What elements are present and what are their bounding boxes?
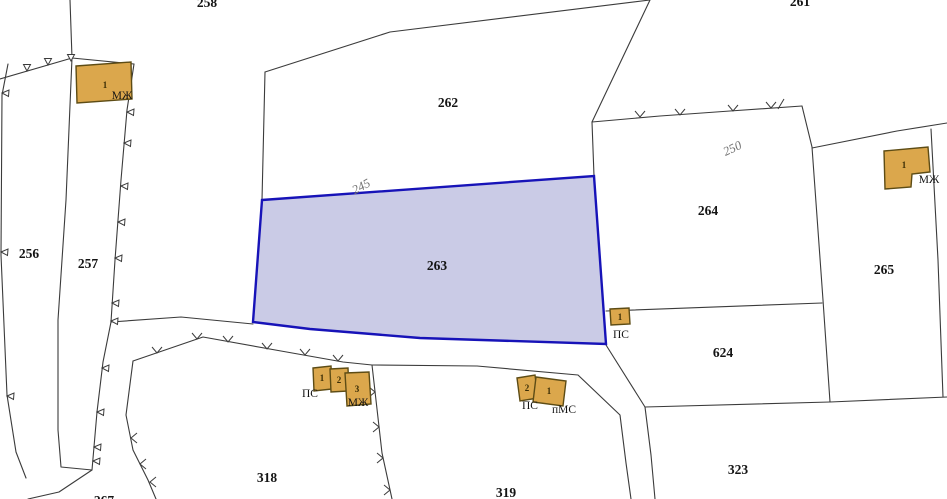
building-number: 1 xyxy=(547,386,552,396)
boundary-line xyxy=(812,147,830,402)
boundary-line xyxy=(111,317,253,324)
boundary-line xyxy=(265,0,650,72)
boundary-line xyxy=(812,123,947,148)
parcel-label-265: 265 xyxy=(874,262,895,277)
fence-triangle-marker xyxy=(115,255,122,262)
boundary-line xyxy=(126,361,156,499)
boundary-line xyxy=(592,106,802,122)
building-number: 1 xyxy=(618,312,623,322)
fence-triangle-marker xyxy=(111,318,118,325)
parcel-label-323: 323 xyxy=(728,462,749,477)
parcel-label-624: 624 xyxy=(713,345,734,360)
building-number: 2 xyxy=(337,375,342,385)
birdfoot-marker xyxy=(635,111,645,117)
parcel-label-partial-top-right: 261 xyxy=(790,0,811,9)
contour-label-250: 250 xyxy=(721,138,745,159)
fence-triangle-marker xyxy=(93,458,100,465)
building-number: 2 xyxy=(525,383,530,393)
fence-triangle-marker xyxy=(124,140,131,147)
boundary-line xyxy=(1,64,26,478)
boundary-line xyxy=(92,64,134,470)
parcel-label-256: 256 xyxy=(19,246,40,261)
building-number: 1 xyxy=(103,80,108,90)
boundary-line xyxy=(606,303,822,311)
boundary-line xyxy=(592,0,650,122)
map-canvas[interactable]: 1 1 1 1 2 3 2 1 МЖ МЖ ПС ПС МЖ ПС пМС 24… xyxy=(0,0,947,499)
boundary-line xyxy=(70,0,72,58)
boundary-line xyxy=(262,72,265,200)
parcel-label-partial-top-center: 258 xyxy=(197,0,218,10)
boundary-line xyxy=(931,129,943,397)
parcel-label-263: 263 xyxy=(427,258,448,273)
parcel-label-318: 318 xyxy=(257,470,278,485)
boundary-line xyxy=(372,365,392,499)
boundary-line xyxy=(592,122,594,176)
birdfoot-marker xyxy=(140,459,146,469)
boundary-line xyxy=(645,407,655,499)
building-type-label: ПС xyxy=(522,400,538,412)
building-type-label: МЖ xyxy=(919,174,940,186)
boundary-line xyxy=(645,397,947,407)
boundary-line xyxy=(133,337,631,499)
parcel-label-partial-bottom-left: 267 xyxy=(94,493,115,499)
fence-triangle-marker xyxy=(121,183,128,190)
building-number: 1 xyxy=(320,373,325,383)
building-number: 1 xyxy=(902,160,907,170)
birdfoot-marker xyxy=(131,433,137,443)
building-type-label: МЖ xyxy=(348,397,369,409)
parcel-label-257: 257 xyxy=(78,256,99,271)
birdfoot-marker xyxy=(766,102,776,108)
boundary-line xyxy=(606,345,645,407)
parcel-label-319: 319 xyxy=(496,485,517,499)
boundary-line xyxy=(0,58,72,79)
parcel-label-262: 262 xyxy=(438,95,459,110)
fence-triangle-marker xyxy=(97,409,104,416)
fence-triangle-marker xyxy=(94,444,101,451)
parcel-label-264: 264 xyxy=(698,203,719,218)
cadastral-map-viewport[interactable]: 1 1 1 1 2 3 2 1 МЖ МЖ ПС ПС МЖ ПС пМС 24… xyxy=(0,0,947,499)
boundary-line xyxy=(28,470,92,499)
building-type-label: ПС xyxy=(613,329,629,341)
building-type-label: пМС xyxy=(552,404,576,416)
fence-triangle-marker xyxy=(112,300,119,307)
building-type-label: МЖ xyxy=(112,90,133,102)
boundary-line xyxy=(802,106,812,147)
building-type-label: ПС xyxy=(302,388,318,400)
fence-triangle-marker xyxy=(1,249,8,256)
fence-triangle-marker xyxy=(118,219,125,226)
fence-triangle-marker xyxy=(127,109,134,116)
building-number: 3 xyxy=(355,384,360,394)
